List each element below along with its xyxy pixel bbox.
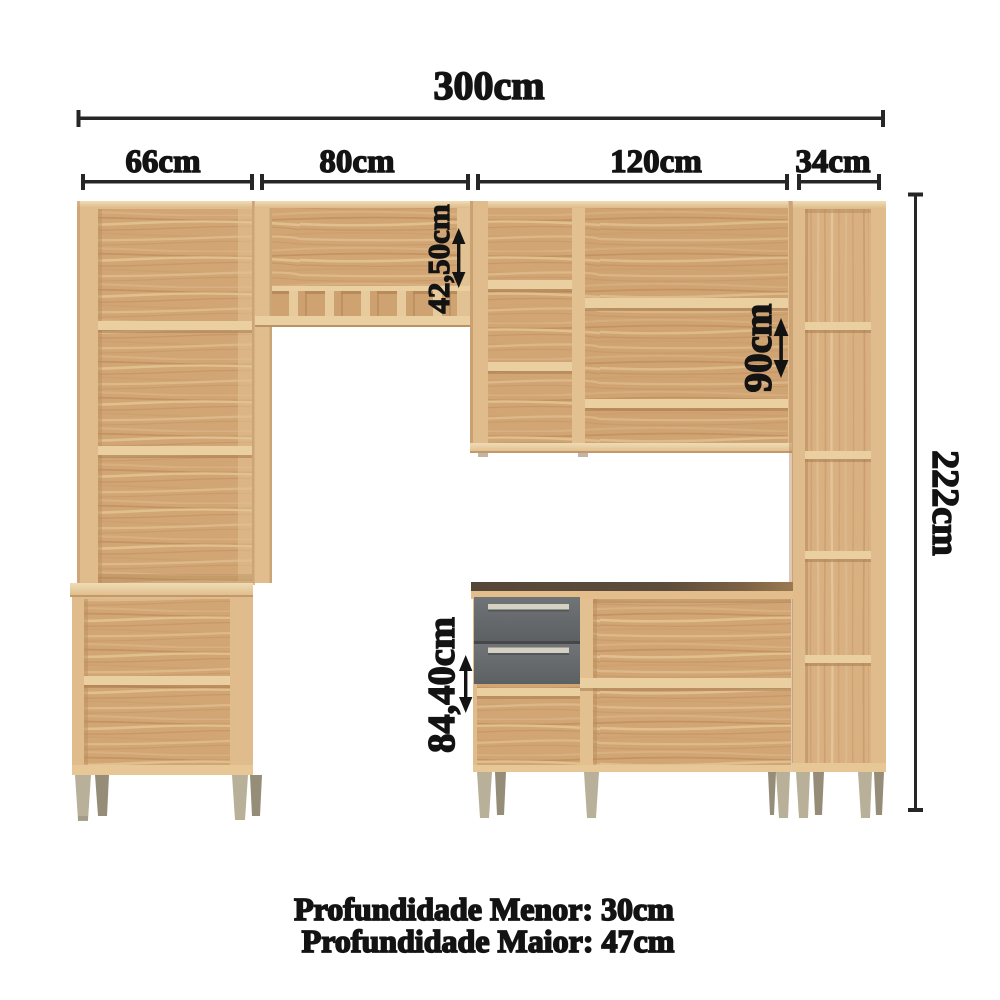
svg-text:34cm: 34cm	[795, 144, 870, 180]
svg-text:42,50cm: 42,50cm	[421, 204, 456, 314]
svg-text:84,40cm: 84,40cm	[421, 617, 463, 753]
svg-text:300cm: 300cm	[433, 63, 544, 108]
svg-text:90cm: 90cm	[737, 304, 780, 393]
svg-text:120cm: 120cm	[610, 144, 702, 180]
svg-text:Profundidade Maior: 47cm: Profundidade Maior: 47cm	[302, 923, 675, 959]
svg-text:222cm: 222cm	[924, 450, 966, 556]
svg-text:66cm: 66cm	[125, 144, 200, 180]
svg-text:Profundidade Menor: 30cm: Profundidade Menor: 30cm	[294, 891, 674, 927]
svg-text:80cm: 80cm	[319, 144, 394, 180]
